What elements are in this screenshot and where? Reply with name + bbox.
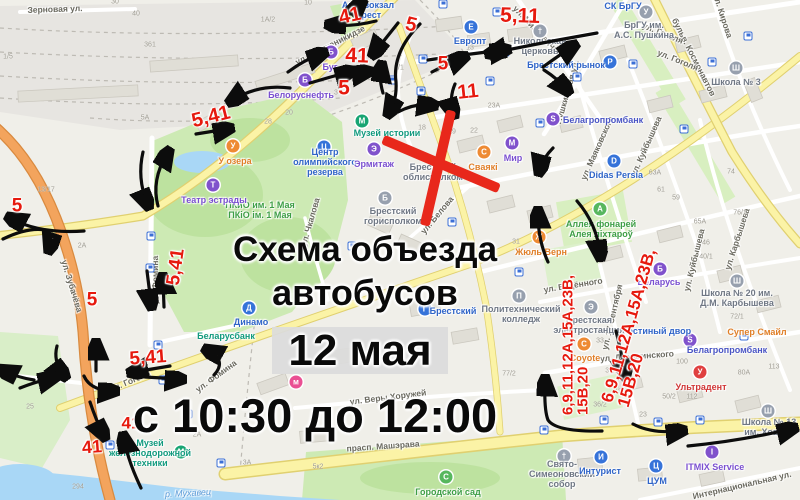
- scheme-time: с 10:30 до 12:00: [60, 388, 570, 443]
- scheme-title-line2: автобусов: [160, 272, 570, 314]
- detour-map-image: Зерновая ул.ул. Орджоникидзеул. Мицкевич…: [0, 0, 800, 500]
- scheme-title-line1: Схема объезда: [160, 230, 570, 270]
- scheme-date: 12 мая: [272, 327, 448, 374]
